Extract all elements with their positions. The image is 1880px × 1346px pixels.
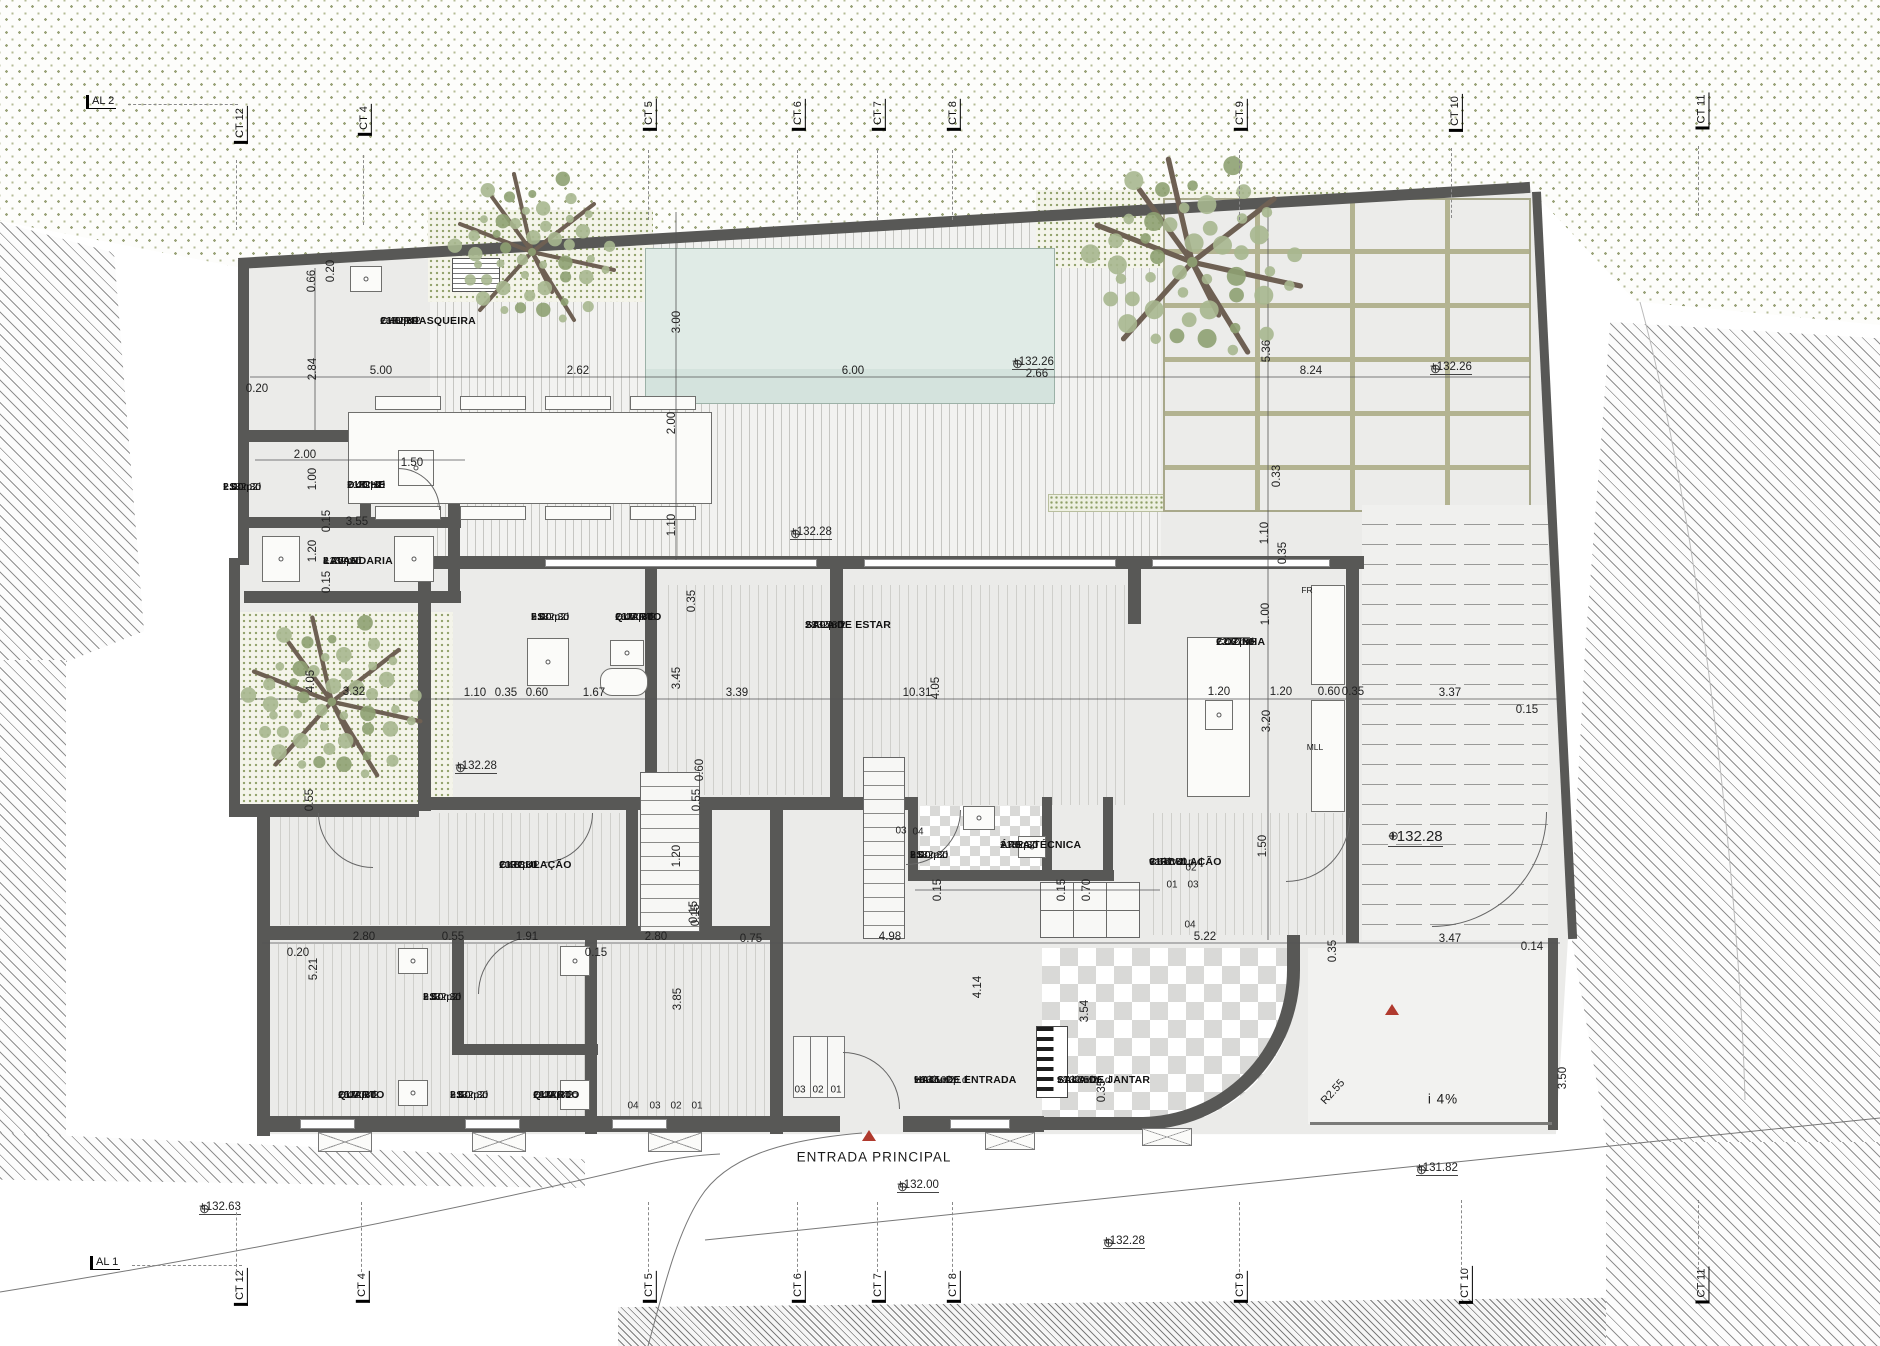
entry-step — [648, 1132, 702, 1152]
grid-dash-line — [1239, 1202, 1240, 1272]
fixture — [398, 1080, 428, 1106]
grid-marker-label: CT 12 — [234, 1268, 248, 1306]
dimension-label: 3.54 — [1079, 1000, 1091, 1022]
grid-marker-label: AL 2 — [86, 95, 116, 109]
fixture — [963, 806, 995, 830]
grid-dash-line — [877, 1202, 878, 1272]
dimension-label: 0.20 — [246, 383, 268, 395]
dimension-label: 1.10 — [666, 514, 678, 536]
dimension-label: 0.35 — [686, 590, 698, 612]
dimension-label: 0.15 — [1516, 704, 1538, 716]
grid-dash-line — [877, 150, 878, 220]
dimension-label: 0.55 — [442, 931, 464, 943]
level-value: +132.26 — [1012, 356, 1054, 370]
stair-step-number: 03 — [1187, 880, 1198, 891]
dimension-label: 1.20 — [1270, 686, 1292, 698]
dimension-label: 0.33 — [1271, 465, 1283, 487]
grid-marker-label: CT 7 — [872, 1271, 886, 1303]
entry-step — [318, 1132, 372, 1152]
dimension-label: 0.55 — [304, 789, 316, 811]
dimension-label: 1.20 — [671, 845, 683, 867]
grid-marker-label: CT 9 — [1234, 99, 1248, 131]
room-level-text: +132.30 — [531, 612, 569, 624]
wall — [830, 569, 843, 803]
dimension-label: 2.80 — [645, 931, 667, 943]
room-level-text: +132.30 — [533, 1090, 571, 1102]
bbq-grill — [350, 266, 382, 292]
fixture — [610, 640, 644, 666]
dimension-label: 0.15 — [1056, 879, 1068, 901]
dimension-label: 2.62 — [567, 365, 589, 377]
entry-step — [472, 1132, 526, 1152]
dimension-label: 10.31 — [903, 687, 932, 699]
dimension-label: 0.15 — [585, 947, 607, 959]
grid-marker-label: CT 10 — [1449, 94, 1463, 132]
dimension-label: 1.20 — [1208, 686, 1230, 698]
dimension-label: 2.00 — [666, 412, 678, 434]
dimension-label: 2.84 — [307, 358, 319, 380]
tree — [1047, 117, 1337, 407]
room-level-text: +132.30 — [323, 556, 361, 568]
dimension-label: 2.80 — [353, 931, 375, 943]
window — [612, 1119, 667, 1129]
dimension-label: 1.00 — [307, 468, 319, 490]
dimension-label: 3.85 — [672, 988, 684, 1010]
entry-step — [1142, 1128, 1192, 1146]
window — [465, 1119, 520, 1129]
dimension-label: 5.36 — [1261, 340, 1273, 362]
dimension-label: 6.00 — [842, 365, 864, 377]
grid-dash-line — [797, 1202, 798, 1272]
neighbor-hatch-left — [0, 222, 150, 662]
dimension-label: 5.00 — [370, 365, 392, 377]
room-level-text: +132.30 — [805, 620, 843, 632]
room-level-text: +132.30 — [1149, 857, 1187, 869]
dimension-label: 3.32 — [343, 686, 365, 698]
dimension-label: 3.45 — [671, 667, 683, 689]
grid-dash-line — [797, 150, 798, 220]
room-level-text: +132.30 — [423, 992, 461, 1004]
entrance-marker-icon — [1385, 1004, 1399, 1015]
room-level-text: +132.30 — [338, 1090, 376, 1102]
dimension-label: 1.10 — [1259, 522, 1271, 544]
dimension-label: 0.15 — [321, 571, 333, 593]
dining-table — [630, 396, 696, 410]
dimension-label: 3.47 — [1439, 933, 1461, 945]
stair-step-number: 01 — [691, 1101, 702, 1112]
grid-marker-label: CT 7 — [872, 99, 886, 131]
grid-marker-label: CT 11 — [1695, 93, 1709, 130]
grid-dash-line — [648, 150, 649, 220]
wall — [1103, 797, 1113, 881]
dimension-label: 0.35 — [1342, 686, 1364, 698]
stair-step-number: 01 — [1166, 880, 1177, 891]
dimension-label: 4.05 — [930, 677, 942, 699]
room-level-text: +132.30 — [615, 612, 653, 624]
grid-dash-line — [1698, 146, 1699, 216]
wall — [257, 804, 270, 1136]
dimension-label: 0.55 — [691, 789, 703, 811]
window — [1152, 559, 1330, 567]
wall — [1548, 938, 1558, 1130]
fixture — [262, 536, 300, 582]
dimension-label: 1.50 — [1257, 835, 1269, 857]
dimension-label: 0.70 — [1081, 879, 1093, 901]
grid-marker-label: CT 4 — [356, 1271, 370, 1303]
kitchen-counter-appliance — [1311, 700, 1345, 812]
level-value: +132.28 — [455, 760, 497, 774]
grid-dash-line — [128, 104, 238, 105]
dimension-label: 0.35 — [1327, 940, 1339, 962]
dimension-label: 0.35 — [495, 687, 517, 699]
grid-dash-line — [236, 1202, 237, 1272]
grid-marker-label: CT 8 — [947, 1271, 961, 1303]
dimension-label: 1.00 — [1260, 603, 1272, 625]
dimension-label: 0.60 — [526, 687, 548, 699]
level-value: +132.63 — [199, 1201, 241, 1215]
grid-dash-line — [1461, 1200, 1462, 1270]
level-value: +132.28 — [790, 526, 832, 540]
fixture — [527, 638, 569, 686]
dining-table — [460, 396, 526, 410]
level-value: +132.28 — [1388, 828, 1443, 847]
wall — [1128, 569, 1141, 624]
wall — [1346, 569, 1359, 943]
dimension-label: 0.20 — [287, 947, 309, 959]
staircase-upper — [863, 757, 905, 939]
swimming-pool — [645, 248, 1055, 404]
dimension-label: 2.00 — [294, 449, 316, 461]
stair-step-number: 02 — [1185, 863, 1196, 874]
stair-step-number: 03 — [649, 1101, 660, 1112]
dimension-label: 0.15 — [688, 901, 700, 923]
dining-table — [545, 506, 611, 520]
room-level-text: +132.30 — [450, 1090, 488, 1102]
dimension-label: 1.20 — [307, 540, 319, 562]
window — [545, 559, 817, 567]
dimension-label: 0.35 — [1096, 1080, 1108, 1102]
dining-table — [545, 396, 611, 410]
level-value: +132.28 — [1103, 1235, 1145, 1249]
grid-marker-label: CT 9 — [1234, 1271, 1248, 1303]
window — [300, 1119, 355, 1129]
piano — [1036, 1026, 1068, 1098]
room-level-text: +132.30 — [499, 860, 537, 872]
tree — [213, 583, 451, 821]
dimension-label: 0.75 — [740, 933, 762, 945]
dimension-label: 0.60 — [694, 759, 706, 781]
room-level-text: +132.30 — [1000, 840, 1038, 852]
dimension-label: 3.50 — [1557, 1067, 1569, 1089]
bathtub — [600, 668, 648, 696]
dimension-label: 0.15 — [932, 879, 944, 901]
dimension-label: 0.60 — [1318, 686, 1340, 698]
stair-step-number: 04 — [1184, 920, 1195, 931]
dimension-label: 0.20 — [325, 260, 337, 282]
fixture — [394, 536, 434, 582]
terrace-edge-line — [1310, 1122, 1552, 1125]
grid-dash-line — [1451, 148, 1452, 218]
neighbor-hatch-bottom-right — [1606, 1142, 1880, 1346]
dimension-label: 3.00 — [671, 311, 683, 333]
grid-marker-label: CT 5 — [643, 1271, 657, 1303]
grid-dash-line — [363, 155, 364, 225]
grid-dash-line — [952, 150, 953, 220]
grid-marker-label: CT 5 — [643, 99, 657, 131]
dining-table — [460, 506, 526, 520]
grid-marker-label: AL 1 — [90, 1256, 120, 1270]
fixture — [398, 948, 428, 974]
grid-dash-line — [648, 1202, 649, 1272]
grid-marker-label: CT 4 — [358, 104, 372, 136]
dining-table — [630, 506, 696, 520]
stair-step-number: 04 — [912, 827, 923, 838]
wall — [770, 810, 783, 1134]
dimension-label: 3.55 — [346, 516, 368, 528]
tree — [422, 142, 642, 362]
neighbor-hatch-left-lower — [0, 660, 66, 1142]
entry-step — [985, 1132, 1035, 1150]
dimension-label: 1.50 — [401, 457, 423, 469]
dimension-label: 3.37 — [1439, 687, 1461, 699]
annotation-note: ENTRADA PRINCIPAL — [797, 1150, 952, 1165]
dimension-label: 1.91 — [516, 931, 538, 943]
dimension-label: 5.22 — [1194, 931, 1216, 943]
dimension-label: 3.39 — [726, 687, 748, 699]
grid-marker-label: CT 10 — [1459, 1266, 1473, 1304]
stair-step-number: 02 — [812, 1085, 823, 1096]
entrance-marker-icon — [862, 1130, 876, 1141]
room-level-text: +132.30 — [347, 480, 385, 492]
grid-dash-line — [952, 1202, 953, 1272]
room-level-text: +132.30 — [1216, 637, 1254, 649]
dimension-label: 8.24 — [1300, 365, 1322, 377]
room-level-text: +132.30 — [223, 482, 261, 494]
floor-plan-canvas: CHURRASQUEIRA16.85m22.40 p.d+132.30I.S.2… — [0, 0, 1880, 1346]
annotation-note: MLL — [1307, 742, 1324, 752]
stair-step-number: 03 — [794, 1085, 805, 1096]
stair-step-number: 04 — [627, 1101, 638, 1112]
annotation-note: i 4% — [1428, 1092, 1458, 1107]
dimension-label: 4.98 — [879, 931, 901, 943]
grid-dash-line — [1239, 150, 1240, 220]
room-level-text: +132.30 — [380, 316, 418, 328]
dimension-label: 0.66 — [306, 270, 318, 292]
grid-dash-line — [361, 1202, 362, 1272]
grid-marker-label: CT 6 — [792, 99, 806, 131]
grid-marker-label: CT 11 — [1695, 1267, 1709, 1304]
grid-marker-label: CT 12 — [234, 106, 248, 144]
dimension-label: 5.21 — [308, 958, 320, 980]
stair-step-number: 02 — [670, 1101, 681, 1112]
grid-dash-line — [236, 160, 237, 230]
room-level-text: +132.30 — [910, 850, 948, 862]
grid-dash-line — [132, 1265, 242, 1266]
wall — [452, 1044, 598, 1055]
grid-dash-line — [1698, 1200, 1699, 1270]
stair-step-number: 01 — [830, 1085, 841, 1096]
dimension-label: 0.15 — [321, 510, 333, 532]
room-level-text: +132.02 — [914, 1075, 952, 1087]
annotation-note: FR — [1301, 585, 1312, 595]
dimension-label: 4.05 — [305, 670, 317, 692]
wall — [626, 810, 638, 936]
grid-marker-label: CT 8 — [947, 99, 961, 131]
dimension-label: 1.67 — [583, 687, 605, 699]
kitchen-sink — [1205, 700, 1233, 730]
room-level-text: +132.50 — [1057, 1075, 1095, 1087]
level-value: +131.82 — [1416, 1162, 1458, 1176]
stair-step-number: 03 — [895, 826, 906, 837]
dimension-label: 4.14 — [972, 976, 984, 998]
kitchen-counter-fridge — [1311, 585, 1345, 685]
dimension-label: 0.35 — [1277, 542, 1289, 564]
dimension-label: 0.14 — [1521, 941, 1543, 953]
window — [950, 1119, 1010, 1129]
level-value: +132.00 — [897, 1179, 939, 1193]
window — [864, 559, 1116, 567]
grid-marker-label: CT 6 — [792, 1271, 806, 1303]
neighbor-hatch-right — [1570, 322, 1880, 1142]
dimension-label: 1.10 — [464, 687, 486, 699]
dining-table — [375, 396, 441, 410]
dimension-label: 3.20 — [1261, 710, 1273, 732]
level-value: +132.26 — [1430, 361, 1472, 375]
